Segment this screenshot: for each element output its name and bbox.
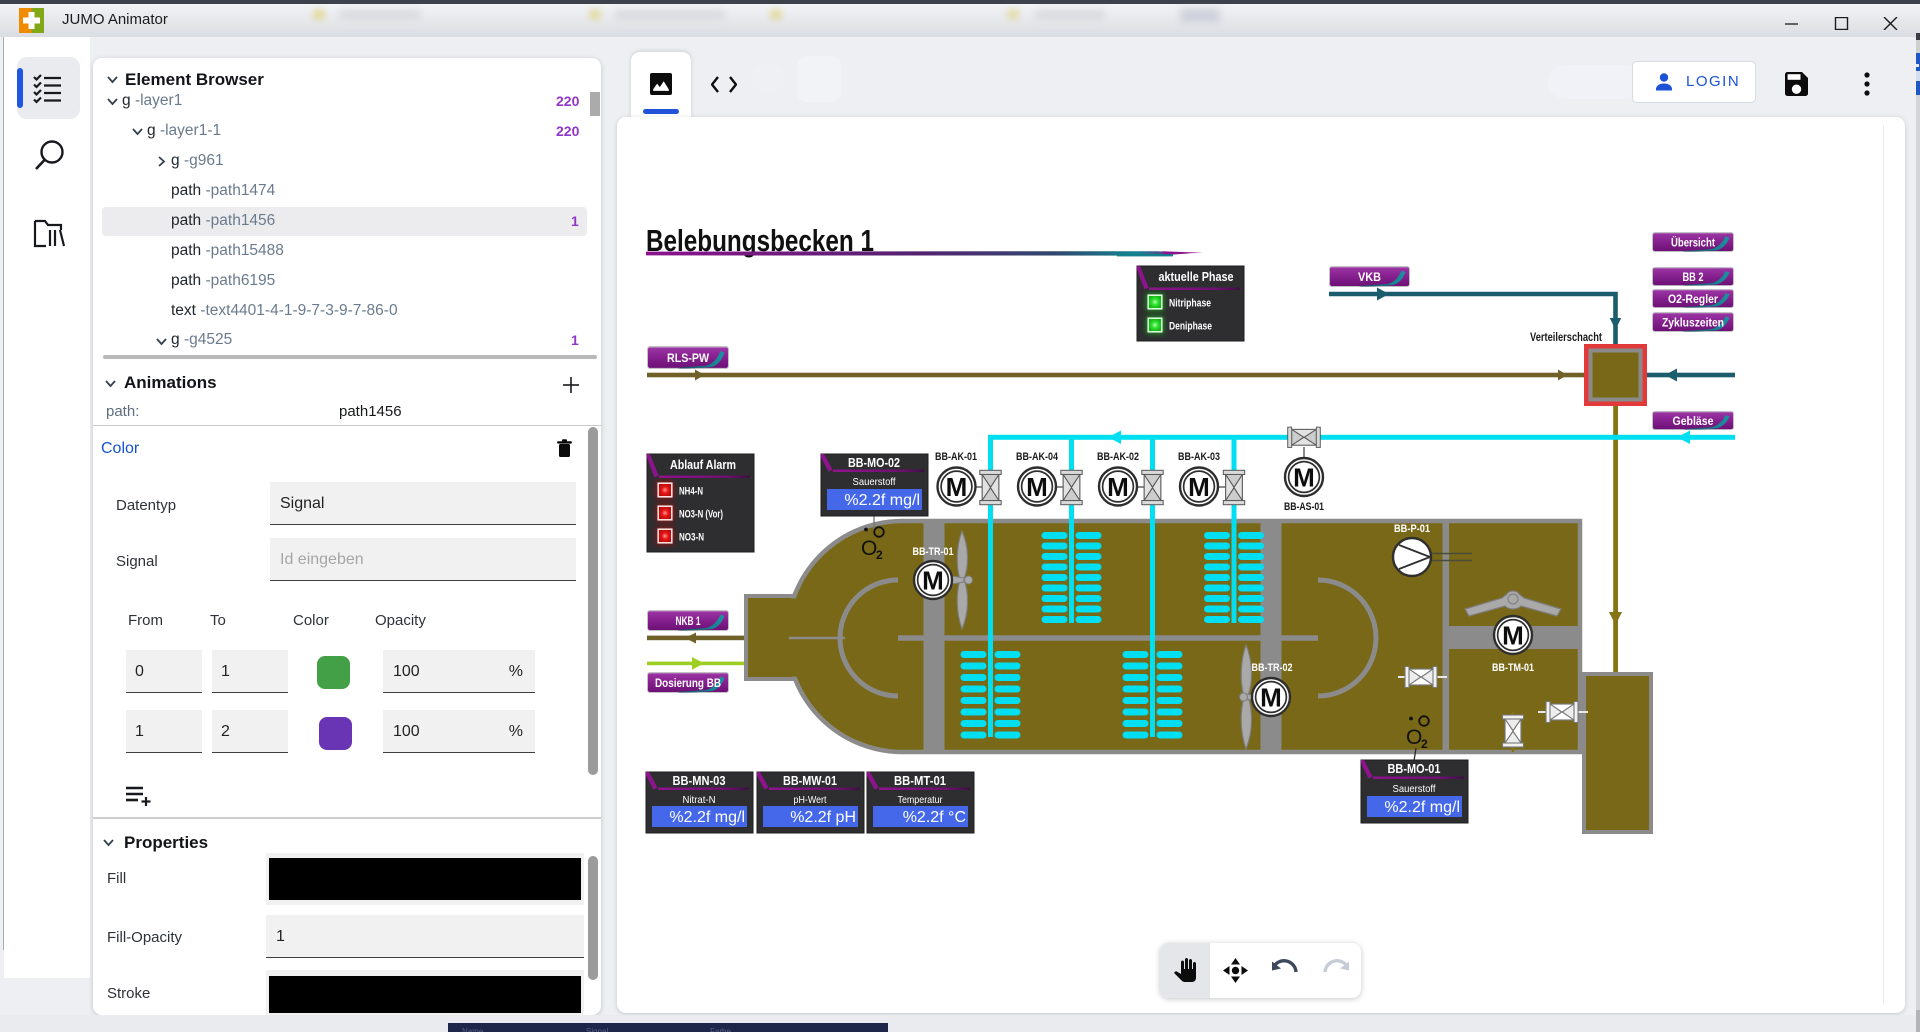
- svg-text:RLS-PW: RLS-PW: [667, 351, 710, 365]
- svg-text:BB-AK-02: BB-AK-02: [1097, 451, 1139, 463]
- svg-text:NO3-N: NO3-N: [679, 532, 704, 544]
- svg-text:BB-TR-01: BB-TR-01: [913, 546, 954, 558]
- svg-text:BB-AK-04: BB-AK-04: [1016, 451, 1059, 463]
- svg-text:BB-MT-01: BB-MT-01: [894, 774, 946, 788]
- svg-text:%2.2f mg/l: %2.2f mg/l: [844, 492, 920, 509]
- svg-text:NO3-N (Vor): NO3-N (Vor): [679, 509, 723, 521]
- svg-text:BB-MN-03: BB-MN-03: [673, 774, 726, 788]
- svg-text:VKB: VKB: [1358, 270, 1381, 284]
- svg-text:Temperatur: Temperatur: [898, 794, 943, 806]
- svg-text:NKB 1: NKB 1: [676, 614, 701, 628]
- svg-text:%2.2f pH: %2.2f pH: [790, 809, 856, 826]
- svg-text:Verteilerschacht: Verteilerschacht: [1530, 332, 1602, 344]
- svg-text:Übersicht: Übersicht: [1671, 235, 1715, 250]
- svg-text:aktuelle Phase: aktuelle Phase: [1159, 270, 1234, 284]
- svg-text:%2.2f mg/l: %2.2f mg/l: [669, 809, 745, 826]
- svg-text:BB-MO-01: BB-MO-01: [1388, 762, 1441, 776]
- svg-text:pH-Wert: pH-Wert: [794, 794, 827, 806]
- svg-text:BB-MW-01: BB-MW-01: [783, 774, 837, 788]
- svg-text:Nitrat-N: Nitrat-N: [683, 794, 716, 806]
- svg-text:BB-AS-01: BB-AS-01: [1284, 501, 1324, 513]
- svg-text:Sauerstoff: Sauerstoff: [853, 476, 896, 488]
- svg-text:NH4-N: NH4-N: [679, 486, 703, 498]
- svg-text:Zykluszeiten: Zykluszeiten: [1662, 316, 1724, 330]
- svg-text:BB-AK-01: BB-AK-01: [935, 451, 977, 463]
- svg-text:BB-TM-01: BB-TM-01: [1492, 662, 1534, 674]
- svg-text:BB 2: BB 2: [1683, 270, 1704, 284]
- svg-text:Gebläse: Gebläse: [1673, 414, 1714, 428]
- svg-text:BB-TR-02: BB-TR-02: [1252, 662, 1293, 674]
- svg-text:%2.2f mg/l: %2.2f mg/l: [1384, 799, 1460, 816]
- svg-text:BB-AK-03: BB-AK-03: [1178, 451, 1220, 463]
- svg-text:%2.2f °C: %2.2f °C: [903, 809, 966, 826]
- svg-text:Sauerstoff: Sauerstoff: [1393, 783, 1436, 795]
- svg-text:Deniphase: Deniphase: [1169, 321, 1212, 333]
- svg-text:BB-P-01: BB-P-01: [1394, 523, 1430, 535]
- svg-text:Nitriphase: Nitriphase: [1169, 298, 1211, 310]
- svg-text:Dosierung BB: Dosierung BB: [655, 676, 721, 690]
- svg-text:Ablauf Alarm: Ablauf Alarm: [670, 458, 736, 472]
- svg-text:O2-Regler: O2-Regler: [1668, 292, 1718, 306]
- svg-text:BB-MO-02: BB-MO-02: [848, 456, 900, 470]
